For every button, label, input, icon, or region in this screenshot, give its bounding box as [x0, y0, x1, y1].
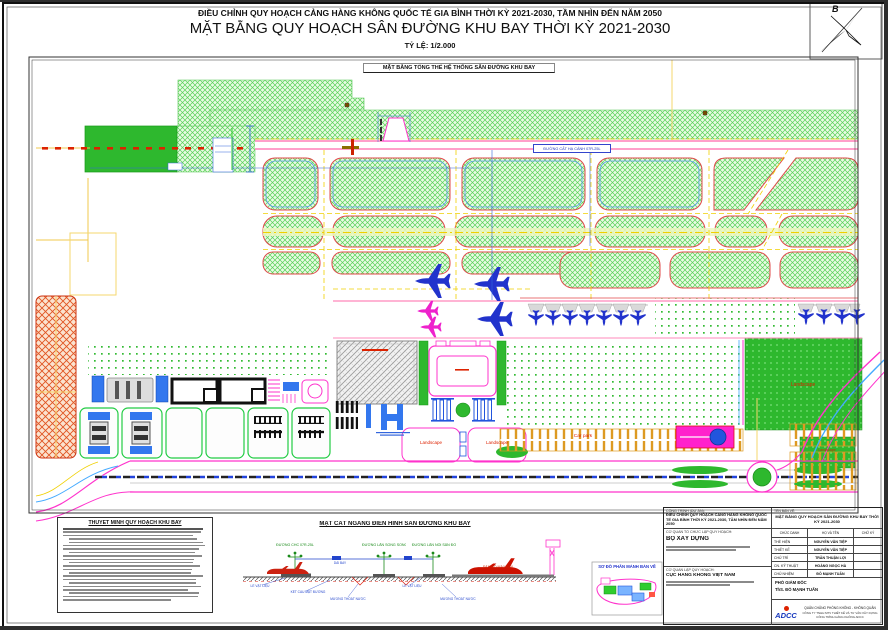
legend-box: THUYẾT MINH QUY HOẠCH KHU BAY	[57, 517, 213, 613]
tb-row-name: ĐỖ MẠNH TUẤN	[807, 569, 853, 577]
tb-row-role: THỂ HIỆN	[771, 537, 807, 545]
company-line1: QUÂN CHỦNG PHÒNG KHÔNG - KHÔNG QUÂN	[800, 606, 880, 610]
scale-label: TỶ LỆ: 1/2.000	[60, 41, 800, 50]
cs-shoulder-label: LỀ VẬT LIỆU	[240, 584, 280, 588]
cs-shoulder-label: LỀ VẬT LIỆU	[392, 584, 432, 588]
north-arrow-icon	[810, 3, 882, 59]
key-map-drawing	[592, 562, 662, 615]
project-name: ĐIỀU CHỈNH QUY HOẠCH CẢNG HÀNG KHÔNG QUỐ…	[666, 513, 769, 527]
cs-apron-label: SÂN ĐỖ MÁY BAY	[468, 565, 528, 569]
cs-ditch-label: MƯƠNG THOÁT NƯỚC	[430, 597, 486, 601]
agency-name: CỤC HÀNG KHÔNG VIỆT NAM	[666, 573, 769, 578]
runway-designation-label: ĐƯỜNG CẤT HẠ CÁNH 07R-25L	[533, 144, 611, 153]
cs-pavement-label: KẾT CẤU MẶT ĐƯỜNG	[282, 590, 334, 594]
tb-row-name: NGUYỄN VĂN TIỆP	[807, 545, 853, 553]
legend-text-lines	[63, 528, 207, 601]
landscape-label: Landscape	[404, 440, 458, 445]
landscape-label: Landscape	[806, 448, 848, 452]
tb-col-sign: CHỮ KÝ	[853, 528, 882, 537]
company-line2: CÔNG TY TNHH MTV THIẾT KẾ VÀ TƯ VẤN XÂY …	[800, 611, 880, 619]
support-facilities	[80, 376, 330, 458]
org-label: CƠ QUAN TỔ CHỨC LẬP QUY HOẠCH:	[666, 530, 769, 534]
plan-subtitle: MẶT BẰNG TỔNG THỂ HỆ THỐNG SÂN ĐƯỜNG KHU…	[363, 63, 555, 73]
cs-parallel-taxiway-label: ĐƯỜNG LĂN SONG SONG	[362, 543, 406, 547]
tb-row-role: THIẾT KẾ	[771, 545, 807, 553]
north-label: B	[832, 4, 839, 14]
taxiway-islands	[263, 150, 858, 300]
drawing-name: MẶT BẰNG QUY HOẠCH SÂN ĐƯỜNG KHU BAY THỜ…	[774, 514, 880, 524]
adcc-logo-text: ADCC	[772, 611, 800, 620]
tb-col-role: CHỨC DANH	[771, 528, 807, 537]
tb-col-name: HỌ VÀ TÊN	[807, 528, 853, 537]
landscape-label: Landscape	[763, 382, 843, 388]
key-map-title: SƠ ĐỒ PHÂN MẢNH BẢN VẼ	[593, 564, 661, 569]
cs-runway-label: ĐƯỜNG CHC 07R-25L	[272, 543, 318, 547]
tb-row-sign	[853, 537, 882, 545]
sheet-header-title: ĐIỀU CHỈNH QUY HOẠCH CẢNG HÀNG KHÔNG QUỐ…	[60, 8, 800, 18]
tb-row-role: CHỦ TRÌ	[771, 553, 807, 561]
org-name: BỘ XÂY DỰNG	[666, 536, 769, 542]
landscape-label: Landscape	[470, 440, 524, 445]
tb-row-role: CHỦ NHIỆM	[771, 569, 807, 577]
tb-row-role: CN. KỸ THUẬT	[771, 561, 807, 569]
tb-row-sign	[853, 569, 882, 577]
title-block: CÔNG TRÌNH (DỰ ÁN): ĐIỀU CHỈNH QUY HOẠCH…	[663, 507, 883, 625]
car-park-label: Car park	[548, 434, 618, 439]
tb-row-name: TRẦN THUẬN LỢI	[807, 553, 853, 561]
tb-row-sign	[853, 545, 882, 553]
agency-label: CƠ QUAN LẬP QUY HOẠCH:	[666, 568, 769, 572]
sheet-drawing-title: MẶT BẰNG QUY HOẠCH SÂN ĐƯỜNG KHU BAY THỜ…	[60, 20, 800, 37]
drawing-name-label: TÊN BẢN VẼ:	[774, 509, 880, 513]
tb-row-sign	[853, 561, 882, 569]
approver-title: PHÓ GIÁM ĐỐC	[775, 580, 879, 585]
cs-connector-taxiway-label: ĐƯỜNG LĂN NỐI SÂN ĐỖ	[411, 543, 457, 547]
cross-section-title: MẶT CẮT NGANG ĐIỂN HÌNH SÂN ĐƯỜNG KHU BA…	[250, 521, 540, 527]
cs-strip-label: DẢI BAY	[322, 561, 358, 565]
drawing-sheet: { "page": { "header_title": "ĐIỀU CHỈNH …	[0, 0, 888, 630]
tb-row-name: NGUYỄN VĂN TIỆP	[807, 537, 853, 545]
company-logo: ADCC	[772, 606, 800, 620]
cs-ditch-label: MƯƠNG THOÁT NƯỚC	[320, 597, 376, 601]
tb-row-name: HOÀNG NGỌC HÀ	[807, 561, 853, 569]
legend-title: THUYẾT MINH QUY HOẠCH KHU BAY	[63, 520, 207, 526]
tb-row-sign	[853, 553, 882, 561]
approver-name: ThS. ĐỖ MẠNH TUẤN	[775, 587, 879, 592]
